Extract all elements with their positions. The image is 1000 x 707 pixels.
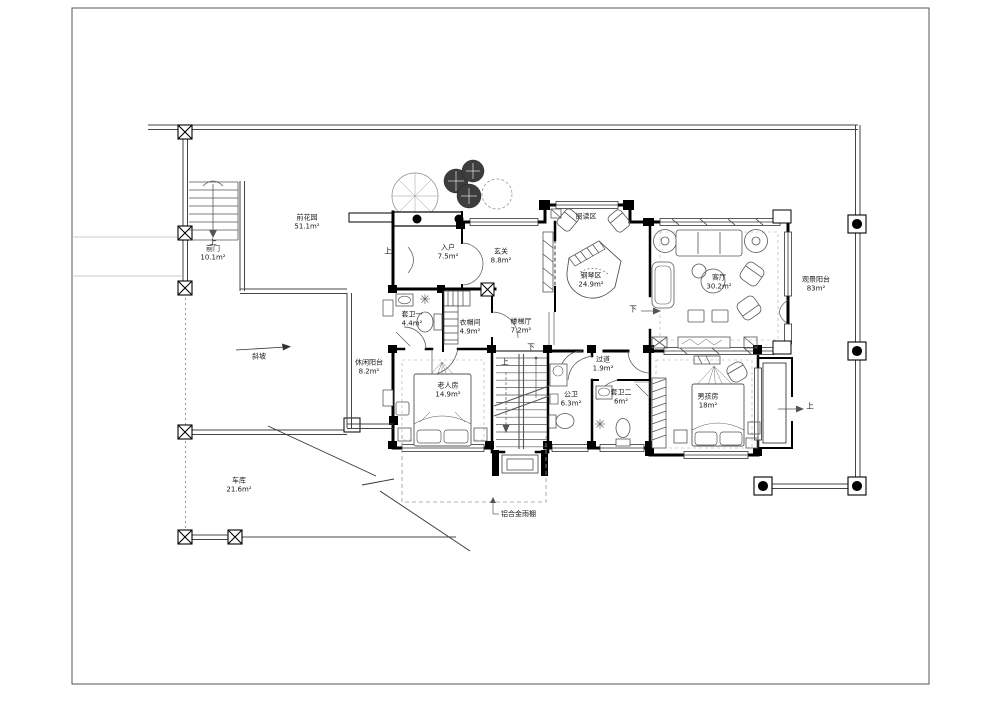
- label-corridor: 过道 1.9m²: [593, 355, 614, 373]
- label-entry: 入户 7.5m²: [438, 243, 459, 261]
- toilet-icon: [556, 414, 574, 429]
- trees: [392, 160, 512, 219]
- label-front-garden: 前花园 51.1m²: [294, 213, 319, 231]
- up-mark-front-gate: 上: [209, 237, 217, 248]
- label-foyer: 玄关 8.8m²: [491, 247, 512, 265]
- grand-piano-icon: [567, 241, 621, 298]
- elder-room-furniture: [396, 360, 487, 446]
- label-leisure-balcony: 休闲阳台 8.2m²: [355, 358, 383, 376]
- label-ensuite-bath-2: 套卫二 6m²: [611, 388, 632, 406]
- label-ensuite-bath-1: 套卫一 4.4m²: [402, 310, 423, 328]
- shower-light-icon: [420, 294, 430, 304]
- down-mark-stair-hall: 下: [527, 342, 535, 353]
- label-reading-area: 阅读区: [576, 213, 597, 222]
- up-mark-east-porch: 上: [806, 401, 814, 412]
- down-mark-living-step: 下: [629, 304, 637, 315]
- toilet-icon: [616, 419, 630, 438]
- floorplan-canvas: 前花园 51.1m² 前门 10.1m² 入户 7.5m² 玄关 8.8m² 阅…: [0, 0, 1000, 707]
- label-living-room: 客厅 30.2m²: [706, 273, 731, 291]
- up-mark-stairs: 上: [501, 357, 509, 368]
- balcony-columns: [754, 215, 866, 495]
- label-boys-room: 男孩房 18m²: [698, 392, 719, 410]
- label-slope: 斜坡: [252, 353, 266, 362]
- wardrobe-icon: [652, 378, 666, 448]
- front-gate-stairs: [189, 181, 238, 240]
- label-public-bath: 公卫 6.3m²: [561, 390, 582, 408]
- floorplan-drawing: [0, 0, 1000, 707]
- foyer-cabinet: [543, 232, 553, 292]
- label-view-balcony: 观景阳台 83m²: [802, 275, 830, 293]
- slope-arrow: [236, 344, 291, 351]
- sheet-border: [72, 8, 929, 684]
- label-canopy: 铝合金雨棚: [501, 509, 536, 519]
- shrub-icon: [482, 179, 512, 209]
- label-piano-area: 钢琴区 24.9m²: [578, 271, 603, 289]
- label-garage: 车库 21.6m²: [226, 476, 251, 494]
- up-mark-entry: 上: [384, 246, 392, 257]
- label-stair-hall: 楼梯厅 7.2m²: [511, 317, 532, 335]
- conifer-trees-icon: [444, 160, 484, 208]
- label-cloakroom: 衣帽间 4.9m²: [460, 318, 481, 336]
- label-elder-room: 老人房 14.9m²: [435, 381, 460, 399]
